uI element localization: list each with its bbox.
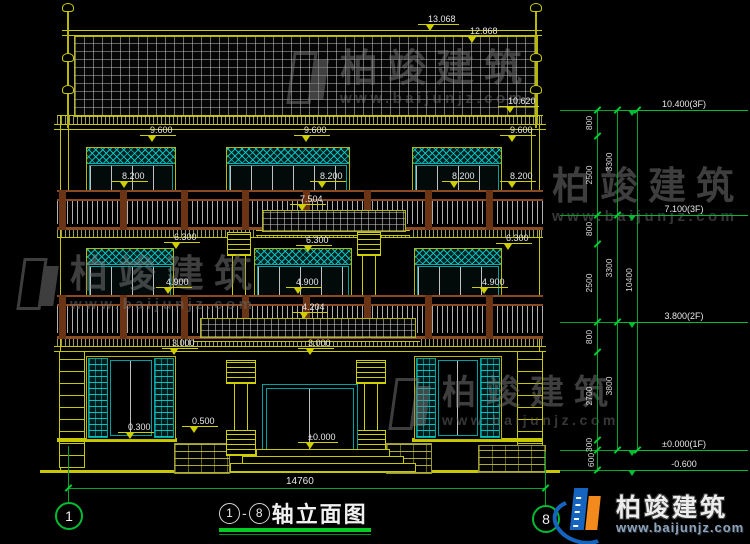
level-triangle [480,288,488,294]
level-triangle [300,313,308,319]
window-side-lattice [480,358,500,438]
window-1f-right [414,356,502,440]
company-logo: 柏竣建筑 www.baijunjz.com [550,484,750,544]
watermark-building-icon [16,256,62,312]
entrance-column-right [356,360,386,456]
dim-9600-right: 9.600 [500,125,536,142]
window-transom-lattice [415,249,501,265]
level-triangle [628,322,636,328]
level-triangle [172,243,180,249]
story-3300-top: 3300 [604,145,614,179]
dim-12868: 12.868 [460,26,501,43]
dim-8200-center: 8.200 [310,171,346,188]
window-transom-lattice [87,249,173,265]
window-side-lattice [88,358,108,438]
dim-chain-line-2 [617,110,618,450]
dim-4900-left: 4.900 [156,277,192,294]
roof-finial-left [62,3,74,128]
title-axis-circle-1: 1 [219,503,240,524]
logo-company-name: 柏竣建筑 [616,488,728,524]
dim-3000-left: 3.000 [162,338,198,355]
logo-building-icon [550,484,612,544]
finial-knob [62,85,74,94]
logo-website: www.baijunjz.com [616,520,744,535]
pilaster-left [68,128,69,192]
level-triangle [302,136,310,142]
level-triangle [164,288,172,294]
level-triangle [504,244,512,250]
level-triangle [318,182,326,188]
column-shaft [364,384,378,430]
column-capital [227,232,251,256]
level-triangle [148,136,156,142]
title-dash: - [240,505,249,521]
dim-0000: ±0.000 [298,432,338,449]
dim-9600-center: 9.600 [294,125,330,142]
overall-dim-line [68,488,546,489]
finial-knob [530,53,542,62]
seg-800-a: 800 [584,106,594,140]
level-triangle [306,349,314,355]
title-underline [219,528,371,532]
watermark-glyph-outline [16,258,47,310]
window-side-lattice [416,358,436,438]
brick-base-left [174,443,230,474]
story-3800: 3800 [604,369,614,403]
window-side-lattice [154,358,174,438]
level-flag-minus600: -0.600 [620,459,748,471]
dim-9600-left: 9.600 [140,125,176,142]
column-capital [226,360,256,384]
dim-6300-center: 6.300 [296,235,332,252]
watermark-name: 柏竣建筑 [552,168,744,206]
axis-bubble-1: 1 [55,502,83,530]
finial-knob [530,85,542,94]
dim-chain-line-3 [637,110,638,450]
watermark-glyph-solid [39,266,59,306]
dim-4900-right: 4.900 [472,277,508,294]
porch-roof-1f-tiles [200,318,416,338]
dim-6300-right: 6.300 [496,233,532,250]
level-triangle [508,136,516,142]
dim-8200-right1: 8.200 [442,171,478,188]
total-10400: 10400 [624,263,634,297]
axis-leader-right [545,452,546,506]
dim-chain-line-1 [597,110,598,472]
seg-2700: 2700 [584,379,594,413]
dim-0300: 0.300 [118,422,154,439]
level-triangle [508,182,516,188]
seg-2500-b: 2500 [584,266,594,300]
level-triangle [298,205,306,211]
dim-7504: 7.504 [290,194,326,211]
title-text: 轴立面图 [272,497,368,529]
level-triangle [468,37,476,43]
finial-knob [62,53,74,62]
level-flag-3800: 3.800(2F) [620,311,748,323]
title-axis-circle-8: 8 [249,503,270,524]
brick-base-right [478,445,546,473]
level-triangle [506,107,514,113]
window-transom-lattice [227,148,349,164]
cad-elevation-drawing: 13.068 12.868 10.620 9.600 9.600 9.600 8… [0,0,750,544]
story-3300-mid: 3300 [604,251,614,285]
dim-10620: 10.620 [498,96,539,113]
watermark-right: 柏竣建筑 www.baijunjz.com [552,168,744,225]
level-triangle [306,443,314,449]
column-capital [356,360,386,384]
dim-4900-center: 4.900 [286,277,322,294]
level-triangle [628,215,636,221]
level-triangle [190,427,198,433]
column-capital [357,232,381,256]
finial-knob [530,3,542,12]
window-transom-lattice [413,148,501,164]
overall-width-dim: 14760 [286,476,314,487]
finial-rod [67,3,69,128]
level-flag-7100: 7.100(3F) [620,204,748,216]
seg-2500-a: 2500 [584,158,594,192]
level-triangle [120,182,128,188]
level-triangle [170,349,178,355]
title-underline-thin [219,534,371,535]
watermark-text: 柏竣建筑 www.baijunjz.com [552,168,744,225]
column-base [226,430,256,456]
dim-8200-left: 8.200 [112,171,148,188]
dim-0500: 0.500 [182,416,218,433]
entrance-step-3 [230,463,416,472]
bay-roof-2f-tiles [262,210,406,232]
level-triangle [126,433,134,439]
level-triangle [450,182,458,188]
level-triangle [426,25,434,31]
window-transom-lattice [87,148,175,164]
corner-pilaster-left [59,352,85,468]
level-triangle [628,470,636,476]
level-triangle [294,288,302,294]
seg-800-c: 800 [584,320,594,354]
dim-13068: 13.068 [418,14,459,31]
dim-8200-right2: 8.200 [500,171,536,188]
dim-3000-center: 3.000 [298,338,334,355]
main-roof-tiles [74,36,538,117]
finial-knob [62,3,74,12]
axis-leader-left [68,446,69,502]
level-triangle [304,246,312,252]
drawing-title: 1 - 8 轴立面图 [219,497,368,529]
entrance-column-left [226,360,256,456]
window-glazing [438,360,478,436]
column-shaft [234,384,248,430]
dim-6300-left: 6.300 [164,232,200,249]
dim-4204: 4.204 [292,302,328,319]
